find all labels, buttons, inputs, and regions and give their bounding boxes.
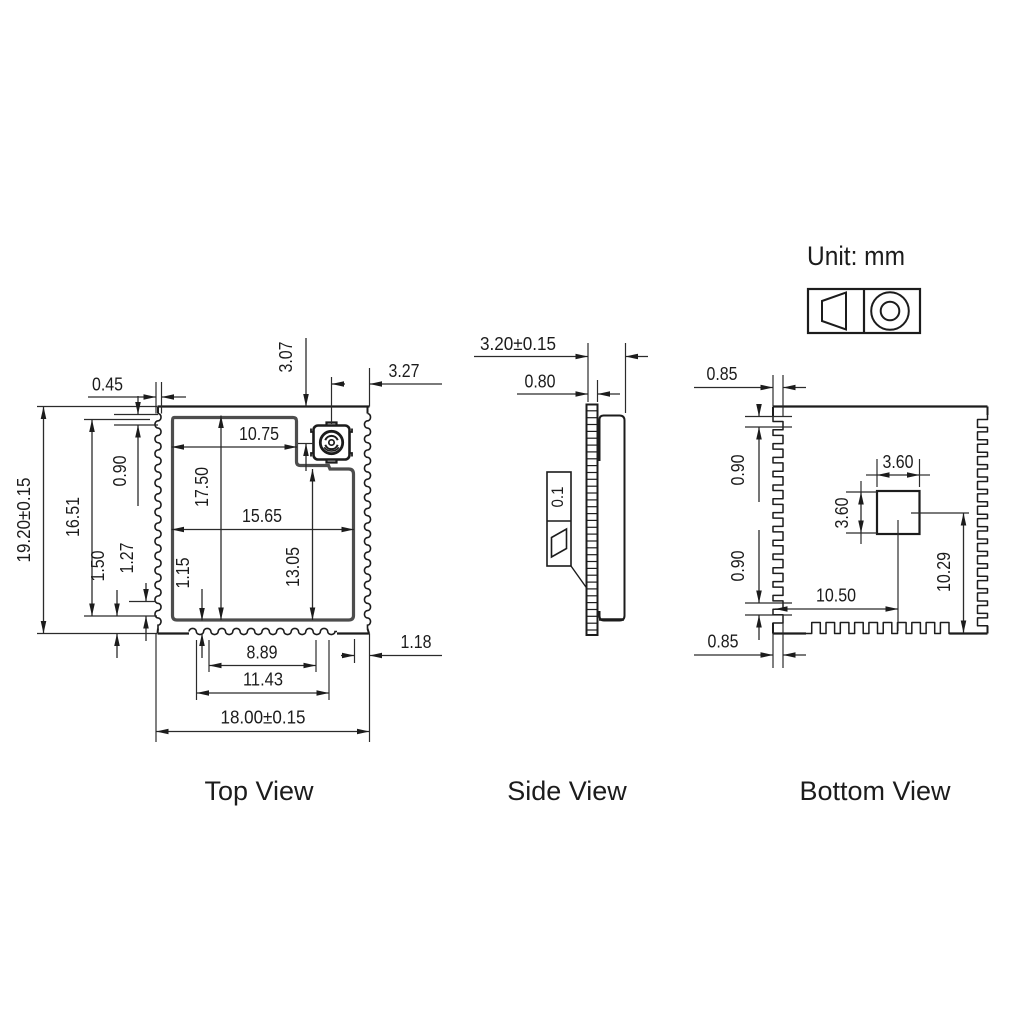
svg-text:3.60: 3.60 <box>883 452 914 472</box>
svg-text:1.15: 1.15 <box>173 558 193 589</box>
svg-text:16.51: 16.51 <box>63 497 83 537</box>
svg-text:0.90: 0.90 <box>728 551 748 582</box>
svg-text:3.27: 3.27 <box>389 361 420 381</box>
svg-text:1.27: 1.27 <box>117 543 137 574</box>
svg-text:0.85: 0.85 <box>708 632 739 652</box>
svg-text:19.20±0.15: 19.20±0.15 <box>14 478 34 563</box>
svg-text:10.29: 10.29 <box>934 552 954 592</box>
svg-text:0.85: 0.85 <box>707 364 738 384</box>
svg-text:8.89: 8.89 <box>247 643 278 663</box>
svg-text:13.05: 13.05 <box>283 547 303 587</box>
svg-text:18.00±0.15: 18.00±0.15 <box>221 708 306 728</box>
svg-text:3.20±0.15: 3.20±0.15 <box>480 334 556 354</box>
svg-text:0.45: 0.45 <box>92 375 123 395</box>
svg-text:10.50: 10.50 <box>816 586 856 606</box>
svg-text:1.18: 1.18 <box>401 632 432 652</box>
svg-text:17.50: 17.50 <box>192 467 212 507</box>
svg-text:Bottom View: Bottom View <box>799 776 951 806</box>
svg-text:0.80: 0.80 <box>525 372 556 392</box>
svg-text:Unit: mm: Unit: mm <box>807 241 905 271</box>
svg-text:0.90: 0.90 <box>110 456 130 487</box>
svg-text:0.90: 0.90 <box>728 455 748 486</box>
svg-text:3.07: 3.07 <box>276 342 296 373</box>
svg-text:11.43: 11.43 <box>243 670 283 690</box>
svg-text:Side View: Side View <box>507 776 627 806</box>
svg-text:Top View: Top View <box>204 776 314 806</box>
svg-text:15.65: 15.65 <box>242 506 282 526</box>
svg-text:0.1: 0.1 <box>548 487 567 508</box>
svg-text:3.60: 3.60 <box>832 498 852 529</box>
svg-text:1.50: 1.50 <box>88 551 108 582</box>
svg-text:10.75: 10.75 <box>239 424 279 444</box>
